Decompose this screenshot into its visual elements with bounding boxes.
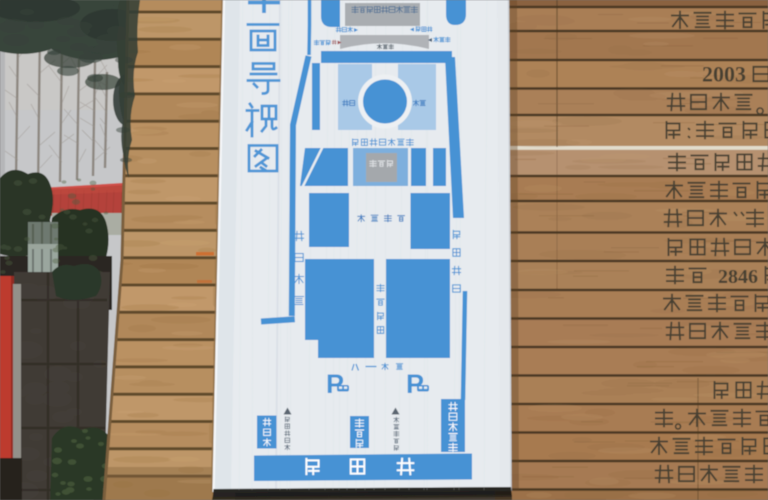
svg-text:2003: 2003 [702,62,746,87]
svg-text:2846: 2846 [718,266,758,288]
svg-text:P: P [326,369,344,399]
svg-text:P: P [406,369,424,399]
